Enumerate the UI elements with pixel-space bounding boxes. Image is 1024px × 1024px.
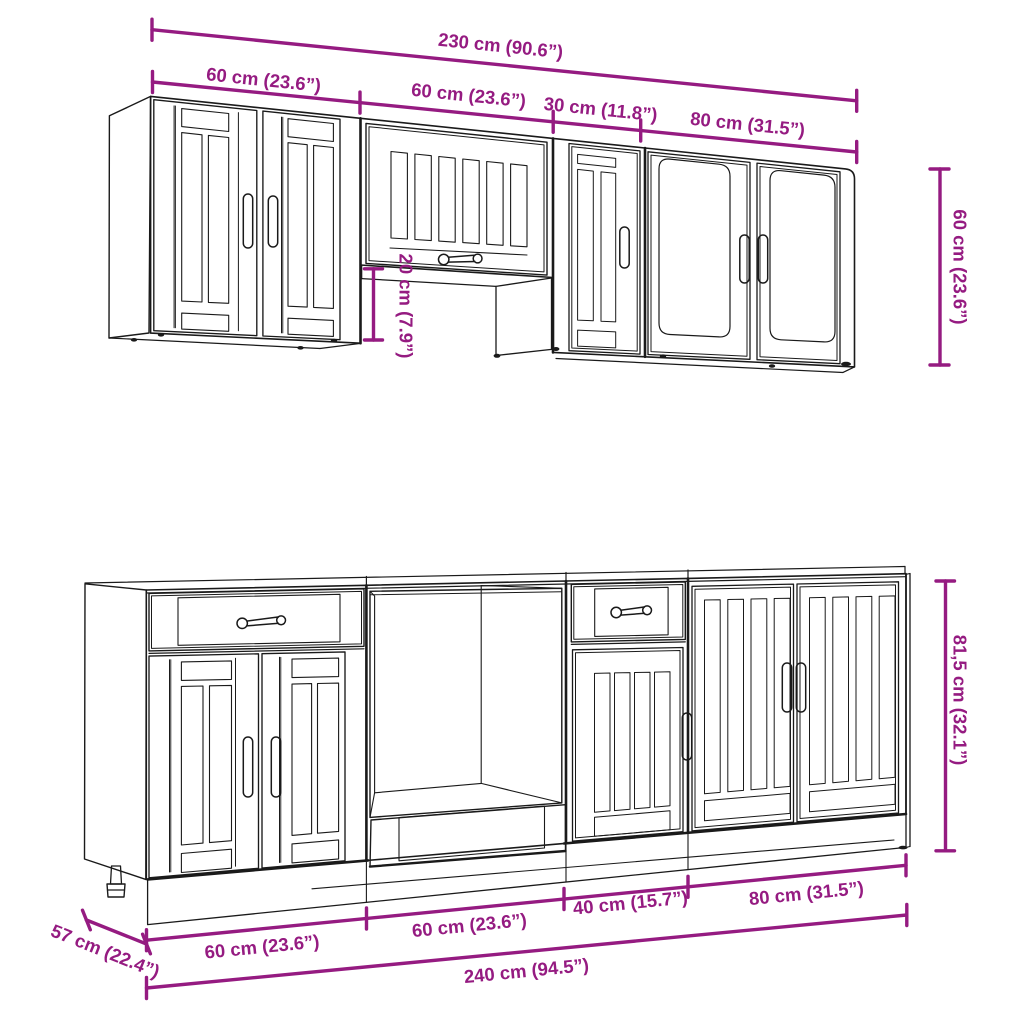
svg-text:60 cm (23.6”): 60 cm (23.6”)	[950, 209, 971, 324]
svg-text:20 cm (7.9”): 20 cm (7.9”)	[396, 254, 417, 359]
svg-text:81,5 cm (32.1”): 81,5 cm (32.1”)	[950, 635, 971, 766]
